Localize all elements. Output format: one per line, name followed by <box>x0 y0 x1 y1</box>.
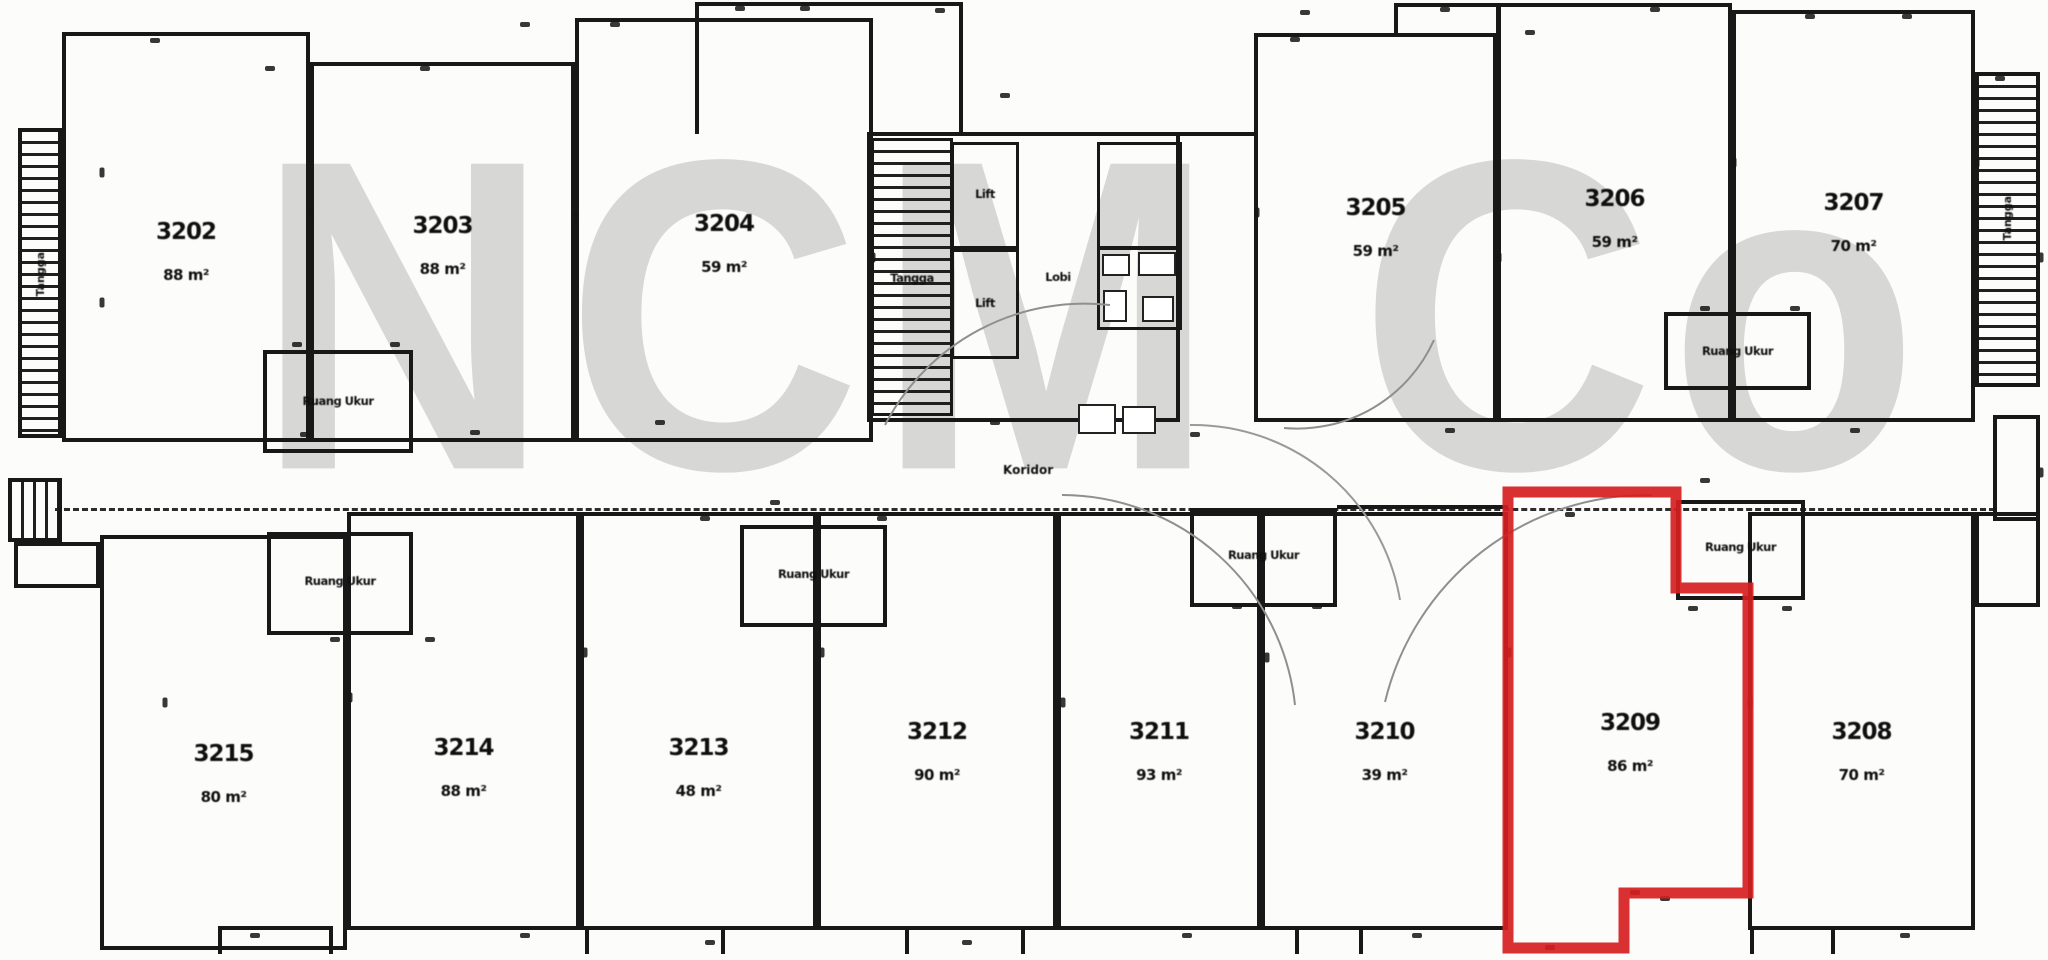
dimension-tick <box>1265 653 1270 663</box>
dimension-tick <box>877 516 887 521</box>
dimension-tick <box>150 38 160 43</box>
room-number: 3212 <box>821 721 1053 744</box>
dimension-tick <box>705 940 715 945</box>
dimension-tick <box>935 8 945 13</box>
toilet-fixture <box>1142 296 1174 322</box>
lift-1: Lift <box>951 142 1019 249</box>
toilet-fixture <box>1138 252 1176 276</box>
service-room-label: Ruang Ukur <box>1680 540 1801 554</box>
dimension-tick <box>163 698 168 708</box>
toilet-divider <box>1097 246 1182 250</box>
dimension-tick <box>420 66 430 71</box>
room-number: 3207 <box>1736 192 1971 215</box>
floor-plan: NCM Co Tangga 3202 88 m² 3203 88 m² 3204… <box>0 0 2048 960</box>
dimension-tick <box>520 933 530 938</box>
toilet-fixture <box>1103 290 1127 322</box>
dimension-tick <box>300 432 310 437</box>
dimension-tick <box>1660 896 1670 901</box>
room-area: 88 m² <box>66 268 306 283</box>
service-room-box: Ruang Ukur <box>1676 500 1805 600</box>
dimension-tick <box>250 933 260 938</box>
dimension-tick <box>1061 698 1066 708</box>
stairwell-left-label: Tangga <box>34 252 47 297</box>
stairwell-right: Tangga <box>1975 72 2040 387</box>
room-number: 3210 <box>1265 721 1504 744</box>
roof-notch <box>695 2 963 134</box>
room-area: 70 m² <box>1752 768 1971 783</box>
dimension-tick <box>610 22 620 27</box>
room-number: 3213 <box>584 737 813 760</box>
dimension-tick <box>1782 606 1792 611</box>
toilet-fixture <box>1122 406 1156 434</box>
dimension-tick <box>520 22 530 27</box>
room-number: 3203 <box>314 215 571 238</box>
dimension-tick <box>1565 512 1575 517</box>
dimension-tick <box>583 648 588 658</box>
room-area: 88 m² <box>314 262 571 277</box>
dimension-tick <box>470 430 480 435</box>
room-number: 3206 <box>1501 188 1728 211</box>
lift-2: Lift <box>951 249 1019 359</box>
dimension-tick <box>390 342 400 347</box>
dimension-tick <box>1300 10 1310 15</box>
dimension-tick <box>1650 7 1660 12</box>
envelope-step <box>585 926 725 954</box>
service-room-label: Ruang Ukur <box>744 567 883 581</box>
room-area: 39 m² <box>1265 768 1504 783</box>
dimension-tick <box>309 208 314 218</box>
service-room-label: Ruang Ukur <box>1668 344 1807 358</box>
dimension-tick <box>1700 306 1710 311</box>
stairwell-right-label: Tangga <box>2001 196 2014 241</box>
dimension-tick <box>1995 76 2005 81</box>
toilet-fixture <box>1078 404 1116 434</box>
dimension-tick <box>770 500 780 505</box>
room-number: 3214 <box>351 737 576 760</box>
dimension-tick <box>1290 37 1300 42</box>
dimension-tick <box>1850 428 1860 433</box>
dimension-tick <box>292 342 302 347</box>
corridor-end-left <box>8 478 62 542</box>
envelope-step <box>218 926 333 954</box>
dimension-tick <box>574 213 579 223</box>
dimension-tick <box>1190 432 1200 437</box>
corridor-label: Koridor <box>1003 463 1053 477</box>
envelope-step <box>14 542 100 588</box>
dimension-tick <box>100 298 105 308</box>
room-area: 59 m² <box>1258 244 1493 259</box>
dimension-tick <box>100 168 105 178</box>
room-number: 3204 <box>579 213 869 236</box>
room-area: 80 m² <box>104 790 343 805</box>
dimension-tick <box>990 420 1000 425</box>
core-stairs: Tangga <box>871 138 953 416</box>
stairwell-left: Tangga <box>18 128 62 438</box>
dimension-tick <box>265 66 275 71</box>
room-3205: 3205 59 m² <box>1254 33 1497 422</box>
service-room-box: Ruang Ukur <box>263 350 413 453</box>
envelope-step <box>1975 512 2040 607</box>
room-number: 3205 <box>1258 197 1493 220</box>
dimension-tick <box>962 940 972 945</box>
dimension-tick <box>1805 14 1815 19</box>
dimension-tick <box>1630 890 1640 895</box>
dimension-tick <box>1182 933 1192 938</box>
room-area: 90 m² <box>821 768 1053 783</box>
dimension-tick <box>425 637 435 642</box>
dimension-tick <box>1748 698 1753 708</box>
dimension-tick <box>820 648 825 658</box>
corridor-end-right <box>1993 415 2040 521</box>
dimension-tick <box>800 6 810 11</box>
dimension-tick <box>1412 933 1422 938</box>
room-number: 3202 <box>66 221 306 244</box>
room-area: 70 m² <box>1736 239 1971 254</box>
dimension-tick <box>1507 648 1512 658</box>
dimension-tick <box>1497 253 1502 263</box>
room-area: 88 m² <box>351 784 576 799</box>
dimension-tick <box>1525 30 1535 35</box>
lift-2-label: Lift <box>954 296 1016 310</box>
dimension-tick <box>1255 208 1260 218</box>
dimension-tick <box>1700 478 1710 483</box>
dimension-tick <box>1312 604 1322 609</box>
lift-lobby-label: Lobi <box>1018 270 1098 284</box>
room-area: 86 m² <box>1555 759 1705 774</box>
toilet-fixture <box>1102 254 1130 276</box>
service-room-box: Ruang Ukur <box>1190 508 1337 607</box>
room-3209-labels: 3209 86 m² <box>1555 712 1705 774</box>
room-area: 93 m² <box>1061 768 1257 783</box>
dimension-tick <box>1975 158 1980 168</box>
dimension-tick <box>330 637 340 642</box>
dimension-tick <box>1790 306 1800 311</box>
dimension-tick <box>871 253 876 263</box>
dimension-tick <box>2039 468 2044 478</box>
dimension-tick <box>348 693 353 703</box>
room-number: 3208 <box>1752 721 1971 744</box>
room-number: 3211 <box>1061 721 1257 744</box>
envelope-step <box>1750 926 1835 954</box>
lift-1-label: Lift <box>954 187 1016 201</box>
service-room-box: Ruang Ukur <box>740 525 887 627</box>
dimension-tick <box>1440 7 1450 12</box>
dimension-tick <box>1545 945 1555 950</box>
dimension-tick <box>1232 604 1242 609</box>
core-stairs-label: Tangga <box>874 271 950 285</box>
service-room-box: Ruang Ukur <box>1664 312 1811 390</box>
room-area: 48 m² <box>584 784 813 799</box>
dimension-tick <box>700 516 710 521</box>
dimension-tick <box>2039 253 2044 263</box>
dimension-tick <box>655 420 665 425</box>
service-room-label: Ruang Ukur <box>1194 548 1333 562</box>
room-area: 59 m² <box>1501 235 1728 250</box>
corridor-boundary-solid <box>1337 505 1508 509</box>
wall-segment <box>1180 132 1256 136</box>
dimension-tick <box>735 6 745 11</box>
service-room-box: Ruang Ukur <box>267 532 413 635</box>
room-number: 3209 <box>1555 712 1705 735</box>
dimension-tick <box>1000 93 1010 98</box>
room-area: 59 m² <box>579 260 869 275</box>
dimension-tick <box>1900 933 1910 938</box>
service-room-label: Ruang Ukur <box>267 394 409 408</box>
service-room-label: Ruang Ukur <box>271 574 409 588</box>
dimension-tick <box>1688 606 1698 611</box>
dimension-tick <box>1732 158 1737 168</box>
dimension-tick <box>1902 14 1912 19</box>
room-number: 3215 <box>104 743 343 766</box>
dimension-tick <box>1445 428 1455 433</box>
envelope-step <box>1295 926 1363 954</box>
